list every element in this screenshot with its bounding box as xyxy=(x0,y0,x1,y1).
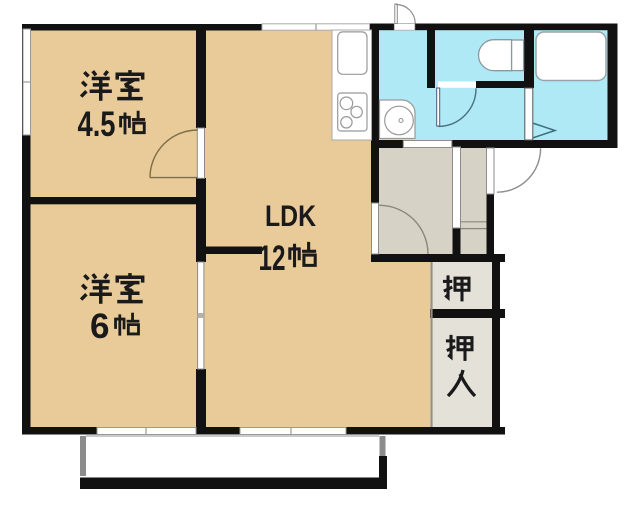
svg-text:4.5: 4.5 xyxy=(78,105,116,144)
svg-text:6: 6 xyxy=(90,307,109,346)
svg-text:LDK: LDK xyxy=(265,200,316,233)
svg-text:12: 12 xyxy=(259,239,286,278)
